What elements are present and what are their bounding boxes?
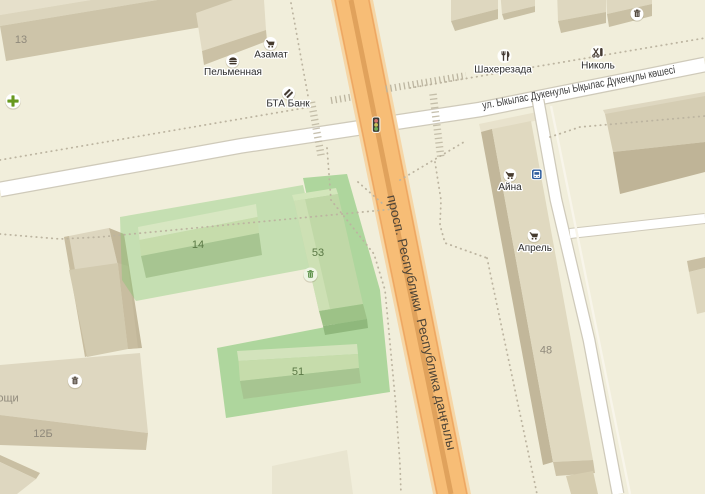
svg-text:Шахерезада: Шахерезада bbox=[474, 65, 532, 76]
svg-text:Айна: Айна bbox=[498, 182, 522, 193]
svg-text:51: 51 bbox=[292, 366, 304, 378]
svg-text:14: 14 bbox=[192, 239, 204, 251]
svg-text:12Б: 12Б bbox=[33, 428, 52, 440]
svg-text:Азамат: Азамат bbox=[254, 50, 288, 61]
svg-text:48: 48 bbox=[540, 345, 552, 357]
svg-text:Апрель: Апрель bbox=[518, 243, 552, 254]
svg-text:13: 13 bbox=[15, 34, 27, 46]
svg-text:ощи: ощи bbox=[0, 393, 19, 405]
svg-text:53: 53 bbox=[312, 247, 324, 259]
svg-text:Николь: Николь bbox=[581, 61, 615, 72]
svg-text:БТА Банк: БТА Банк bbox=[266, 99, 310, 110]
svg-text:Пельменная: Пельменная bbox=[204, 67, 262, 78]
